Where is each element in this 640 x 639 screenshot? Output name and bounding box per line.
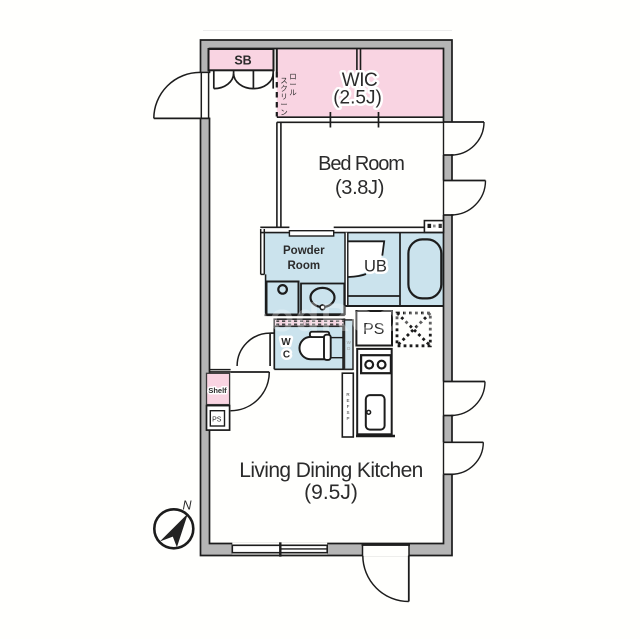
svg-text:(9.5J): (9.5J): [304, 481, 358, 504]
svg-text:N: N: [182, 499, 192, 513]
svg-text:Shelf: Shelf: [208, 386, 227, 395]
svg-text:S: S: [346, 410, 349, 415]
svg-text:(3.8J): (3.8J): [335, 177, 384, 199]
svg-text:F: F: [347, 404, 350, 409]
svg-text:Powder: Powder: [283, 245, 325, 257]
svg-text:E: E: [346, 398, 349, 403]
svg-text:(2.5J): (2.5J): [333, 88, 382, 109]
svg-text:C: C: [283, 350, 290, 361]
svg-text:Bed Room: Bed Room: [318, 153, 404, 175]
svg-text:GoodRoom: GoodRoom: [212, 296, 438, 340]
svg-text:Room: Room: [288, 260, 321, 272]
svg-text:W: W: [347, 340, 352, 345]
svg-text:ル: ル: [289, 88, 297, 97]
svg-text:P: P: [346, 416, 349, 421]
svg-text:Living Dining Kitchen: Living Dining Kitchen: [239, 459, 423, 482]
svg-text:PS: PS: [212, 416, 222, 423]
svg-text:SB: SB: [234, 54, 251, 68]
svg-text:ン: ン: [280, 108, 288, 117]
svg-text:UB: UB: [364, 258, 387, 276]
